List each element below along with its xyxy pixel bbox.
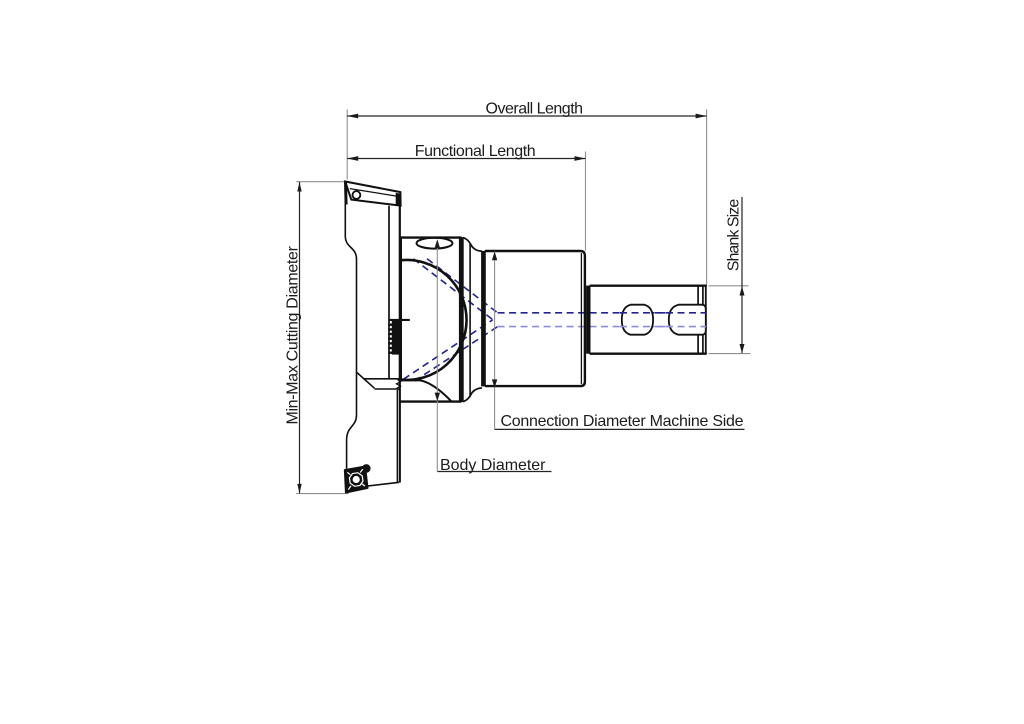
svg-text:Shank Size: Shank Size <box>726 199 743 272</box>
svg-text:Body Diameter: Body Diameter <box>440 457 546 474</box>
svg-text:Functional Length: Functional Length <box>415 143 536 160</box>
svg-text:Overall Length: Overall Length <box>486 101 584 118</box>
svg-text:Connection Diameter Machine Si: Connection Diameter Machine Side <box>501 413 744 430</box>
svg-text:Min-Max Cutting Diameter: Min-Max Cutting Diameter <box>285 245 302 424</box>
